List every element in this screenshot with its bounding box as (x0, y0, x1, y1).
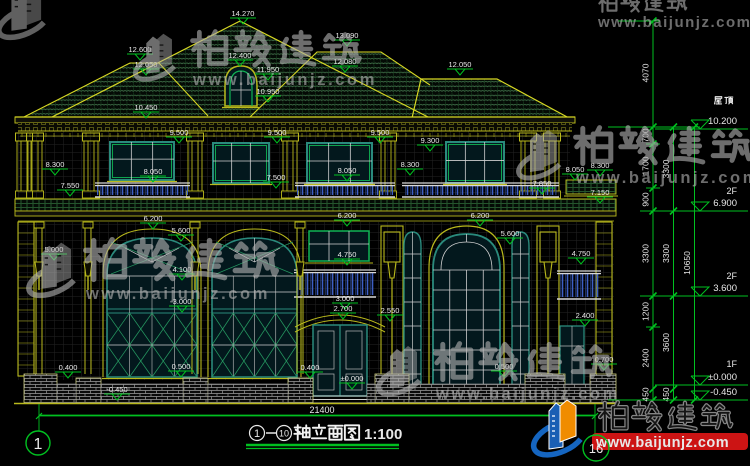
svg-text:2400: 2400 (641, 348, 651, 367)
svg-text:4.750: 4.750 (338, 250, 357, 259)
svg-text:8.300: 8.300 (401, 160, 420, 169)
svg-text:9.500: 9.500 (170, 128, 189, 137)
svg-text:10: 10 (279, 429, 289, 439)
svg-text:2F: 2F (726, 271, 737, 281)
svg-text:14.270: 14.270 (232, 9, 255, 18)
svg-text:450: 450 (661, 387, 671, 401)
svg-text:7.150: 7.150 (591, 188, 610, 197)
svg-text:2F: 2F (726, 186, 737, 196)
svg-text:3300: 3300 (641, 244, 651, 263)
svg-text:www.baijunjz.com: www.baijunjz.com (575, 169, 750, 187)
svg-text:3.600: 3.600 (713, 283, 737, 294)
svg-text:0.400: 0.400 (301, 363, 320, 372)
svg-text:1: 1 (34, 436, 43, 453)
svg-text:7.550: 7.550 (61, 181, 80, 190)
svg-text:9.500: 9.500 (268, 128, 287, 137)
svg-text:0.500: 0.500 (172, 362, 191, 371)
svg-text:5.600: 5.600 (172, 226, 191, 235)
svg-text:6.200: 6.200 (471, 211, 490, 220)
svg-text:1:100: 1:100 (364, 426, 402, 443)
svg-text:7.850: 7.850 (533, 179, 552, 188)
svg-text:2.400: 2.400 (576, 311, 595, 320)
svg-text:www.baijunjz.com: www.baijunjz.com (597, 14, 750, 31)
svg-text:21400: 21400 (309, 405, 334, 415)
svg-text:9.500: 9.500 (371, 128, 390, 137)
svg-text:7.500: 7.500 (267, 173, 286, 182)
svg-text:±0.000: ±0.000 (341, 374, 364, 383)
svg-text:6.900: 6.900 (713, 198, 737, 209)
svg-text:16: 16 (589, 441, 603, 456)
svg-text:5.600: 5.600 (501, 229, 520, 238)
svg-text:1200: 1200 (641, 302, 651, 321)
svg-text:www.baijunjz.com: www.baijunjz.com (85, 285, 270, 303)
svg-text:9.300: 9.300 (421, 136, 440, 145)
svg-text:4.750: 4.750 (572, 249, 591, 258)
svg-text:www.baijunjz.com: www.baijunjz.com (192, 71, 377, 89)
svg-text:4070: 4070 (641, 63, 651, 82)
svg-text:450: 450 (641, 387, 651, 401)
svg-text:10650: 10650 (682, 251, 692, 275)
svg-text:±0.000: ±0.000 (708, 372, 737, 383)
svg-text:6.200: 6.200 (338, 211, 357, 220)
svg-text:3600: 3600 (661, 333, 671, 352)
svg-text:www.baijunjz.com: www.baijunjz.com (435, 385, 620, 403)
svg-text:-0.450: -0.450 (106, 385, 127, 394)
svg-text:8.300: 8.300 (46, 160, 65, 169)
svg-text:3.000: 3.000 (336, 294, 355, 303)
svg-text:6.200: 6.200 (144, 214, 163, 223)
svg-text:12.400: 12.400 (229, 51, 252, 60)
svg-text:10.200: 10.200 (708, 116, 737, 127)
svg-text:0.400: 0.400 (59, 363, 78, 372)
svg-text:10.450: 10.450 (135, 103, 158, 112)
svg-text:2.700: 2.700 (334, 304, 353, 313)
svg-text:12.050: 12.050 (449, 60, 472, 69)
svg-text:900: 900 (641, 192, 651, 206)
svg-text:3300: 3300 (661, 244, 671, 263)
svg-text:1: 1 (254, 428, 260, 440)
svg-text:-0.450: -0.450 (710, 387, 737, 398)
svg-text:www.baijunjz.com: www.baijunjz.com (595, 435, 729, 451)
svg-text:1F: 1F (726, 359, 737, 369)
svg-text:2.550: 2.550 (381, 306, 400, 315)
svg-text:8.050: 8.050 (144, 167, 163, 176)
svg-text:8.050: 8.050 (338, 166, 357, 175)
